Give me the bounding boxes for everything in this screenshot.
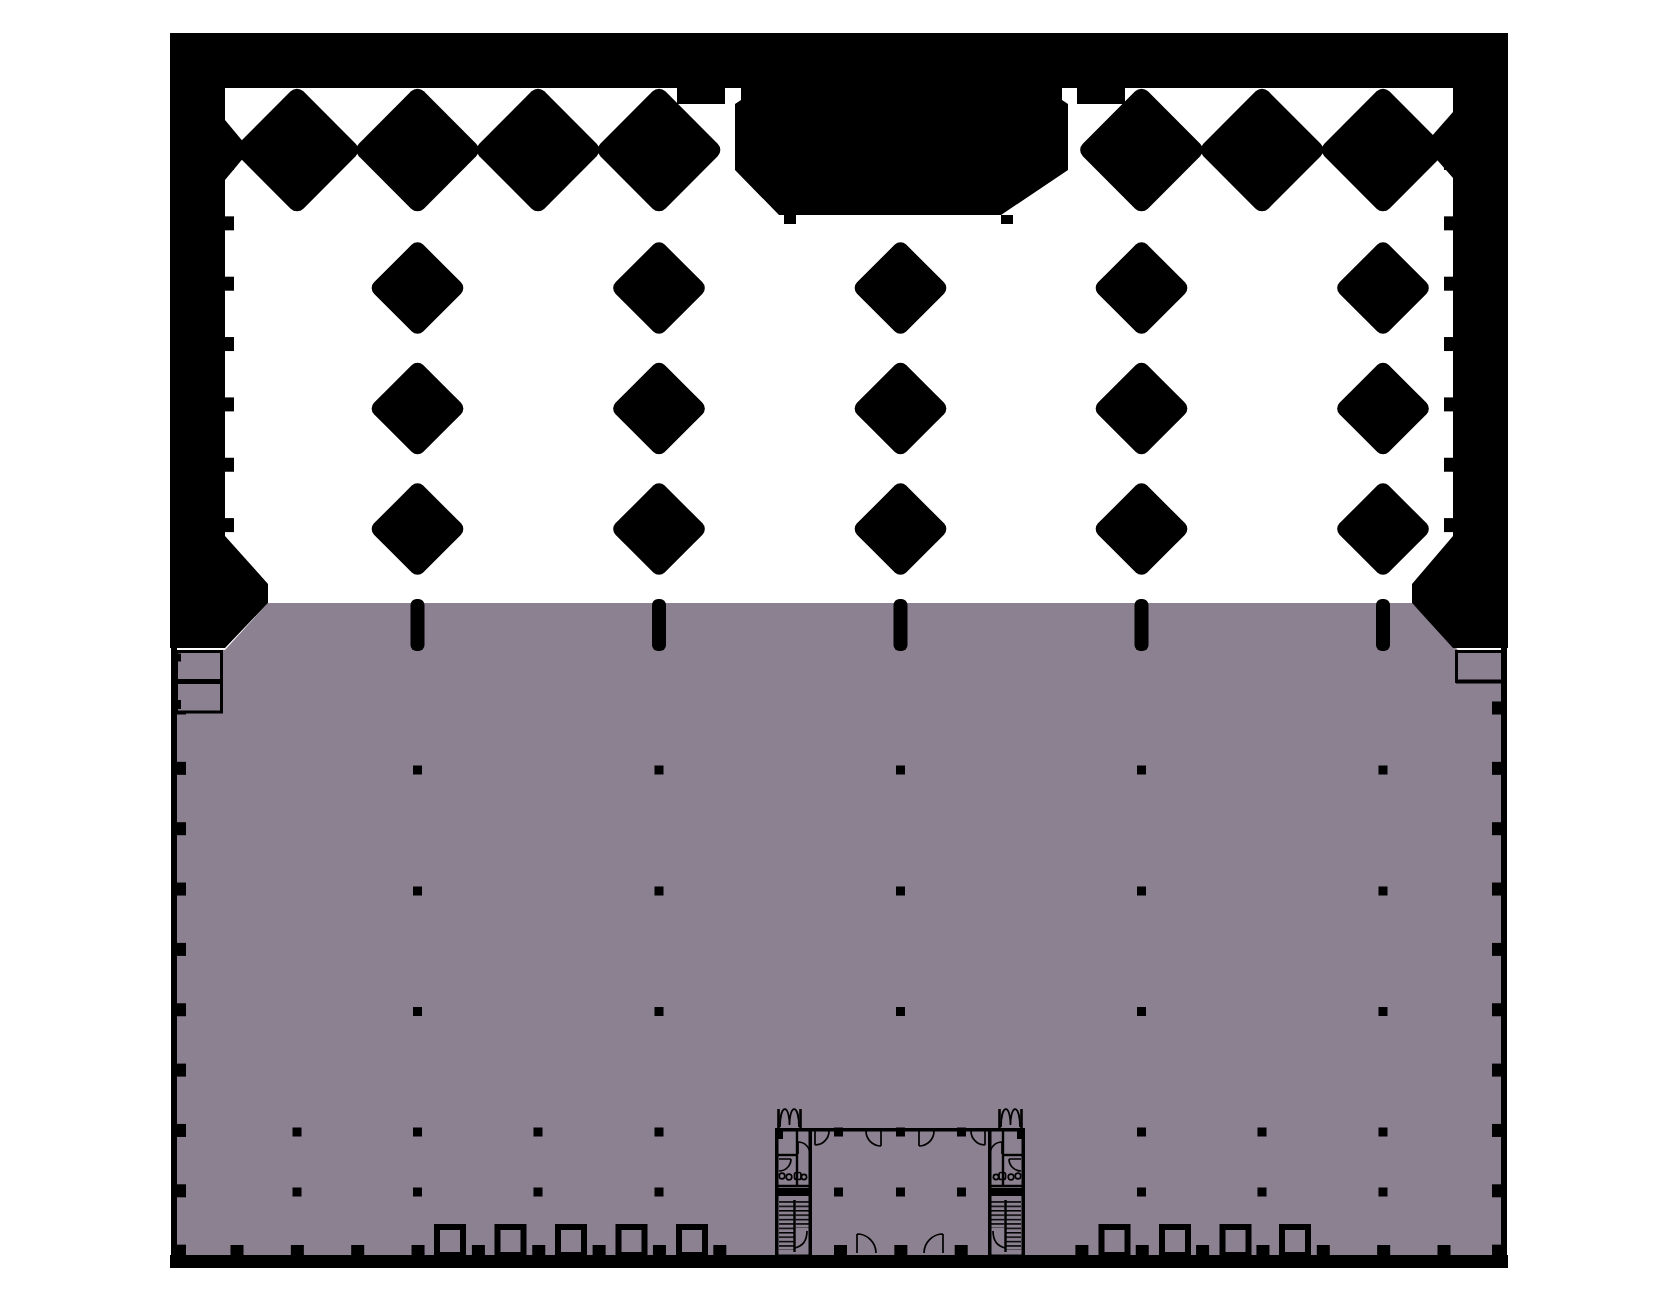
wall-nub-right [1444, 216, 1453, 230]
facade-tick [1196, 1245, 1209, 1255]
wall-nub-right [1492, 1184, 1501, 1197]
facade-tick [713, 1245, 726, 1255]
grid-dot [534, 1188, 543, 1197]
grid-dot [1137, 1007, 1146, 1016]
grid-dot [1258, 1128, 1267, 1137]
wall-nub-left [177, 1003, 186, 1016]
facade-tick [1317, 1245, 1330, 1255]
facade-tick [894, 1245, 907, 1255]
door-opening [1282, 1227, 1308, 1255]
door-opening [1223, 1227, 1249, 1255]
floor-slab [175, 603, 1503, 1262]
grid-dot-core [834, 1128, 843, 1137]
grid-dot [1137, 1128, 1146, 1137]
facade-tick [834, 1245, 847, 1255]
wall-nub-right [1444, 277, 1453, 291]
grid-dot [293, 1188, 302, 1197]
slab-edge-mark [1135, 599, 1149, 651]
door-opening [619, 1227, 645, 1255]
grid-dot [1379, 766, 1388, 775]
grid-dot [1379, 1128, 1388, 1137]
wall-nub-right [1492, 702, 1501, 715]
facade-tick [231, 1245, 244, 1255]
grid-dot [293, 1128, 302, 1137]
facade-tick [351, 1245, 364, 1255]
wall-nub-left [225, 397, 234, 411]
wall-nub-left [225, 156, 234, 170]
door-opening [1102, 1227, 1128, 1255]
grid-dot [1258, 1188, 1267, 1197]
grid-dot [1379, 1007, 1388, 1016]
left-thin-wall [171, 648, 177, 1262]
floor-plan-drawing [0, 0, 1680, 1300]
grid-dot [896, 1007, 905, 1016]
grid-dot [413, 887, 422, 896]
wall-nub-right [1492, 1245, 1501, 1258]
wall-nub-right [1492, 1124, 1501, 1137]
door-opening [498, 1227, 524, 1255]
floor-plan-page [0, 0, 1680, 1300]
grid-dot [534, 1128, 543, 1137]
central-block-shoulder [677, 88, 725, 104]
room-sill [1456, 680, 1503, 684]
slab-edge-mark [894, 599, 908, 651]
facade-ticks [231, 1245, 1451, 1255]
door-opening [558, 1227, 584, 1255]
central-block-nub [1001, 215, 1013, 224]
facade-tick [653, 1245, 666, 1255]
facade-tick [532, 1245, 545, 1255]
facade-tick [1377, 1245, 1390, 1255]
door-opening [679, 1227, 705, 1255]
wall-nub-left [177, 883, 186, 896]
facade-tick [1256, 1245, 1269, 1255]
slab-edge-mark [1376, 599, 1390, 651]
facade-tick [1438, 1245, 1451, 1255]
wall-nub-left [177, 1184, 186, 1197]
grid-dot [1379, 1188, 1388, 1197]
door-opening [437, 1227, 463, 1255]
grid-dot-core [834, 1188, 843, 1197]
wall-nub-right [1492, 822, 1501, 835]
wall-nub-right [1444, 156, 1453, 170]
grid-dot [896, 1188, 905, 1197]
wall-nub-right [1492, 943, 1501, 956]
slab-edge-mark [652, 599, 666, 651]
right-side-room [1457, 652, 1503, 682]
grid-dot [413, 1188, 422, 1197]
slab-edge-mark [411, 599, 425, 651]
wall-nub-left [177, 822, 186, 835]
wall-nub-right [1492, 762, 1501, 775]
wall-nub-left [225, 277, 234, 291]
room-nub [175, 654, 181, 662]
wall-nub-left [225, 337, 234, 351]
left-side-room [177, 652, 222, 681]
grid-dot [1379, 887, 1388, 896]
grid-dot-core [957, 1128, 966, 1137]
wall-nub-left [177, 762, 186, 775]
grid-dot [655, 1007, 664, 1016]
facade-tick [412, 1245, 425, 1255]
grid-dot [1137, 766, 1146, 775]
grid-dot [655, 766, 664, 775]
grid-dot [655, 1188, 664, 1197]
grid-dot [413, 1128, 422, 1137]
door-opening [1162, 1227, 1188, 1255]
wall-nub-left [177, 1245, 186, 1258]
facade-tick [955, 1245, 968, 1255]
left-side-room [177, 683, 222, 713]
wall-nub-right [1492, 1064, 1501, 1077]
grid-dot [655, 887, 664, 896]
central-block-shoulder [1077, 88, 1125, 104]
room-nub [175, 700, 181, 709]
grid-dot [896, 1128, 905, 1137]
facade-tick [593, 1245, 606, 1255]
central-block-body [735, 40, 1068, 215]
right-thin-wall [1501, 648, 1507, 1262]
wall-nub-left [225, 458, 234, 472]
grid-dot [413, 1007, 422, 1016]
grid-dot [655, 1128, 664, 1137]
left-wall [170, 33, 225, 648]
wall-nub-right [1444, 397, 1453, 411]
grid-dot [896, 887, 905, 896]
wall-nub-right [1444, 458, 1453, 472]
wall-nub-left [177, 1124, 186, 1137]
facade-tick [1075, 1245, 1088, 1255]
wall-nub-left [225, 216, 234, 230]
wall-nub-right [1492, 883, 1501, 896]
right-wall [1453, 33, 1508, 648]
grid-dot [896, 766, 905, 775]
facade-tick [472, 1245, 485, 1255]
wall-nub-left [225, 518, 234, 532]
grid-dot [1137, 1188, 1146, 1197]
wall-nub-right [1444, 337, 1453, 351]
grid-dot [413, 766, 422, 775]
grid-dot [1137, 887, 1146, 896]
central-block-nub [784, 215, 796, 224]
wall-nub-left [177, 943, 186, 956]
facade-tick [1136, 1245, 1149, 1255]
wall-nub-left [177, 1064, 186, 1077]
wall-nub-right [1492, 1003, 1501, 1016]
wall-nub-right [1444, 518, 1453, 532]
facade-tick [291, 1245, 304, 1255]
grid-dot-core [957, 1188, 966, 1197]
